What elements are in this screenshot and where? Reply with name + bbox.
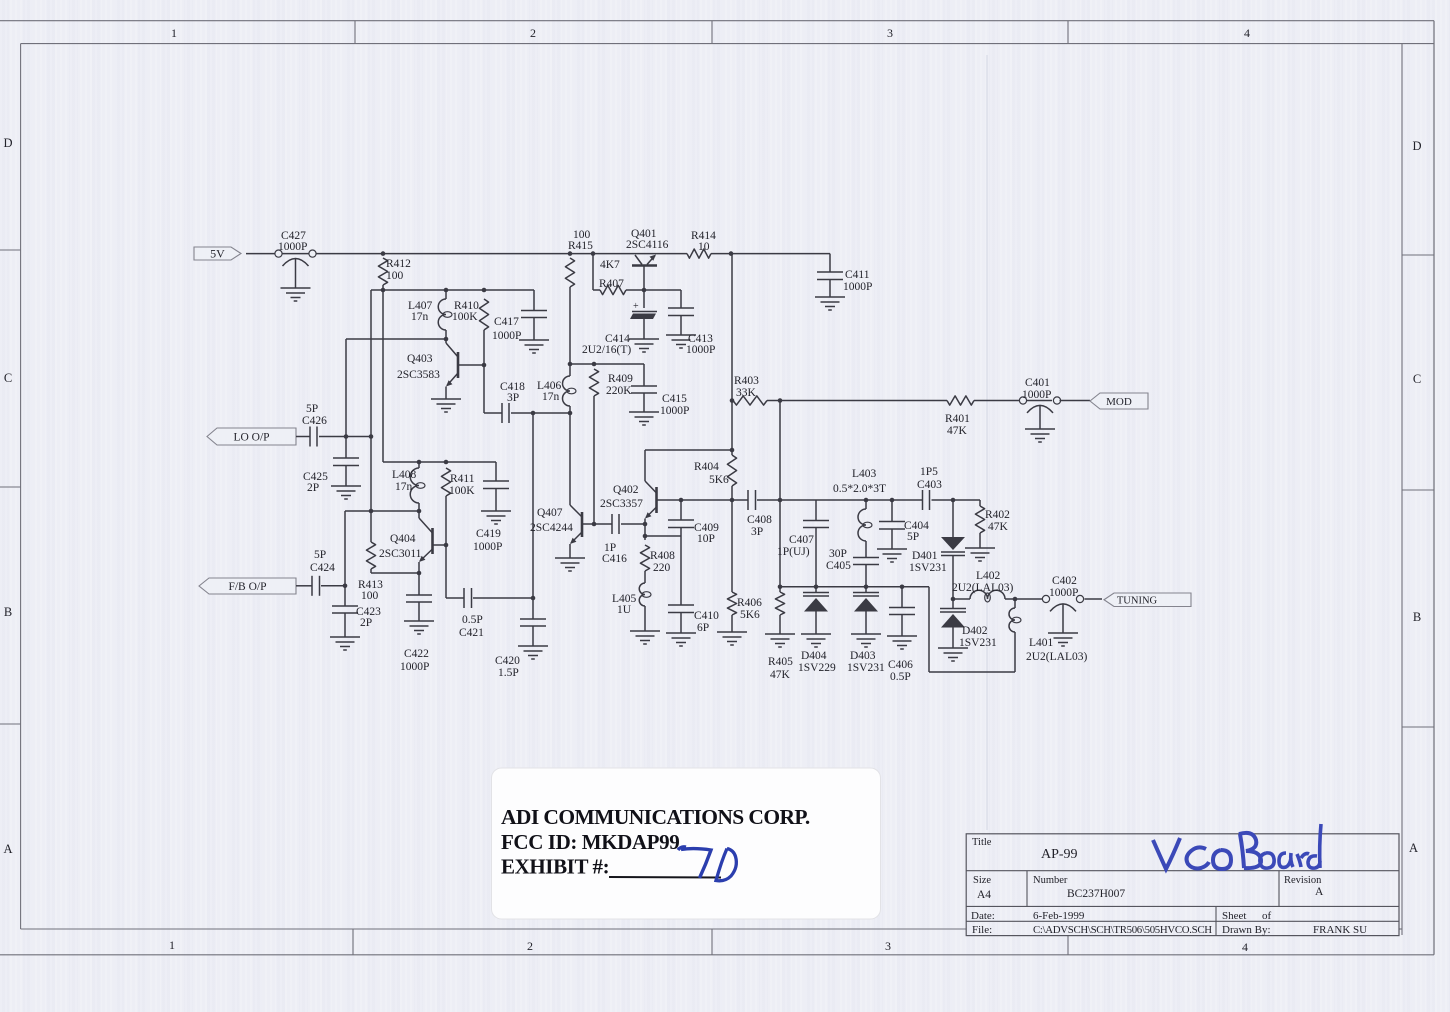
svg-text:BC237H007: BC237H007 [1067,888,1125,900]
svg-text:0.5*2.0*3T: 0.5*2.0*3T [833,483,886,495]
svg-text:47K: 47K [988,521,1009,533]
svg-text:0.5P: 0.5P [462,614,483,626]
svg-text:1SV231: 1SV231 [909,562,947,574]
svg-text:A: A [3,842,12,856]
svg-text:Q402: Q402 [613,484,639,496]
svg-text:1: 1 [169,938,175,952]
svg-text:1000P: 1000P [400,661,429,673]
svg-text:B: B [1413,610,1421,624]
svg-text:File:: File: [972,924,992,936]
svg-text:4: 4 [1242,940,1248,954]
svg-text:L402: L402 [976,570,1001,582]
svg-text:C410: C410 [694,610,719,622]
svg-text:D404: D404 [801,650,827,662]
svg-text:FCC ID: MKDAP99: FCC ID: MKDAP99 [501,830,679,854]
svg-text:2: 2 [527,939,533,953]
svg-text:5K6: 5K6 [709,474,729,486]
svg-text:3: 3 [885,939,891,953]
svg-text:FRANK SU: FRANK SU [1313,924,1367,936]
svg-text:C421: C421 [459,627,484,639]
svg-text:1000P: 1000P [1049,587,1078,599]
svg-text:2U2(LAL03): 2U2(LAL03) [952,582,1013,594]
svg-text:C402: C402 [1052,575,1077,587]
svg-text:A: A [1409,841,1418,855]
svg-text:F/B O/P: F/B O/P [228,581,266,593]
svg-text:6P: 6P [697,622,709,634]
svg-text:1.5P: 1.5P [498,667,519,679]
svg-text:1SV231: 1SV231 [959,637,997,649]
svg-text:Date:: Date: [971,910,995,922]
svg-text:2SC3011: 2SC3011 [379,548,422,560]
svg-text:L401: L401 [1029,637,1054,649]
svg-text:Q404: Q404 [390,533,416,545]
svg-text:2SC4244: 2SC4244 [530,522,573,534]
svg-text:Q407: Q407 [537,507,563,519]
svg-text:R409: R409 [608,373,633,385]
svg-text:5P: 5P [314,549,326,561]
svg-text:5P: 5P [907,531,919,543]
svg-text:Q403: Q403 [407,353,433,365]
svg-text:3: 3 [887,26,893,40]
svg-text:EXHIBIT #:: EXHIBIT #: [501,855,609,879]
svg-text:Size: Size [973,875,991,886]
svg-text:30P: 30P [829,548,847,560]
svg-text:1000P: 1000P [843,281,872,293]
svg-text:100K: 100K [452,311,478,323]
svg-text:R402: R402 [985,509,1010,521]
svg-text:C424: C424 [310,562,335,574]
svg-text:1SV229: 1SV229 [798,662,836,674]
svg-text:2P: 2P [307,482,319,494]
svg-text:220: 220 [653,562,671,574]
svg-text:TUNING: TUNING [1117,596,1158,607]
svg-text:1P(UJ): 1P(UJ) [777,546,810,558]
svg-text:C411: C411 [845,269,870,281]
svg-text:6-Feb-1999: 6-Feb-1999 [1033,910,1085,922]
svg-text:L403: L403 [852,468,877,480]
svg-text:5K6: 5K6 [740,609,760,621]
svg-text:C407: C407 [789,534,814,546]
svg-text:C401: C401 [1025,377,1050,389]
svg-text:2: 2 [530,26,536,40]
svg-text:5V: 5V [210,246,225,260]
svg-text:C408: C408 [747,514,772,526]
svg-text:C426: C426 [302,415,327,427]
svg-text:3P: 3P [507,392,519,404]
svg-text:Sheet: Sheet [1222,910,1246,922]
svg-text:C406: C406 [888,659,913,671]
svg-text:C: C [4,371,12,385]
svg-text:C422: C422 [404,648,429,660]
svg-text:R404: R404 [694,461,719,473]
svg-text:R408: R408 [650,550,675,562]
svg-text:2SC4116: 2SC4116 [626,239,669,251]
svg-text:10: 10 [698,241,710,253]
svg-text:4: 4 [1244,26,1250,40]
svg-text:C417: C417 [494,316,519,328]
svg-text:100: 100 [386,270,404,282]
svg-text:C420: C420 [495,655,520,667]
svg-text:4K7: 4K7 [600,259,620,271]
svg-text:R405: R405 [768,656,793,668]
svg-text:Drawn By:: Drawn By: [1222,924,1271,936]
svg-text:L408: L408 [392,469,417,481]
svg-text:100: 100 [361,590,379,602]
svg-text:C: C [1413,372,1421,386]
svg-text:17n: 17n [542,391,560,403]
svg-text:1000P: 1000P [278,241,307,253]
svg-text:C416: C416 [602,553,627,565]
svg-text:of: of [1262,910,1272,922]
svg-text:Number: Number [1033,875,1068,886]
svg-text:R401: R401 [945,413,970,425]
svg-text:2SC3357: 2SC3357 [600,498,643,510]
svg-text:D: D [1412,139,1421,153]
svg-text:220K: 220K [606,385,632,397]
svg-text:33K: 33K [736,387,757,399]
svg-text:17n: 17n [395,481,413,493]
svg-text:1: 1 [171,26,177,40]
svg-text:D401: D401 [912,550,938,562]
svg-text:C415: C415 [662,393,687,405]
svg-text:C:\ADVSCH\SCH\TR506\505HVCO.SC: C:\ADVSCH\SCH\TR506\505HVCO.SCH [1033,924,1212,936]
svg-text:0.5P: 0.5P [890,671,911,683]
svg-text:2SC3583: 2SC3583 [397,369,440,381]
svg-text:MOD: MOD [1106,396,1132,408]
svg-text:17n: 17n [411,311,429,323]
svg-text:LO O/P: LO O/P [233,431,269,443]
svg-text:ADI COMMUNICATIONS CORP.: ADI COMMUNICATIONS CORP. [501,805,810,829]
svg-text:R406: R406 [737,597,762,609]
svg-text:1000P: 1000P [1022,389,1051,401]
svg-text:AP-99: AP-99 [1041,847,1078,862]
svg-text:2U2/16(T): 2U2/16(T) [582,344,631,356]
svg-text:A: A [1315,886,1324,898]
svg-text:2U2(LAL03): 2U2(LAL03) [1026,651,1087,663]
svg-text:1SV231: 1SV231 [847,662,885,674]
svg-text:R412: R412 [386,258,411,270]
svg-text:R403: R403 [734,375,759,387]
svg-text:10P: 10P [697,533,715,545]
svg-text:B: B [4,605,12,619]
svg-text:47K: 47K [770,669,791,681]
svg-text:Title: Title [972,837,992,848]
svg-text:100K: 100K [449,485,475,497]
svg-text:C405: C405 [826,560,851,572]
svg-text:D: D [3,136,12,150]
svg-text:3P: 3P [751,526,763,538]
svg-text:47K: 47K [947,425,968,437]
svg-text:D403: D403 [850,650,876,662]
svg-text:R407: R407 [599,278,624,290]
svg-text:R411: R411 [450,473,475,485]
svg-text:2P: 2P [360,617,372,629]
svg-text:D402: D402 [962,625,988,637]
svg-text:+: + [633,301,639,312]
svg-text:R415: R415 [568,240,593,252]
svg-text:1000P: 1000P [492,330,521,342]
svg-text:Revision: Revision [1284,875,1322,886]
svg-text:A4: A4 [977,889,991,901]
svg-text:C419: C419 [476,528,501,540]
svg-text:1000P: 1000P [686,344,715,356]
svg-text:1000P: 1000P [473,541,502,553]
svg-text:1P5: 1P5 [920,466,938,478]
svg-text:C403: C403 [917,479,942,491]
svg-text:1U: 1U [617,604,632,616]
svg-text:1000P: 1000P [660,405,689,417]
svg-text:5P: 5P [306,403,318,415]
